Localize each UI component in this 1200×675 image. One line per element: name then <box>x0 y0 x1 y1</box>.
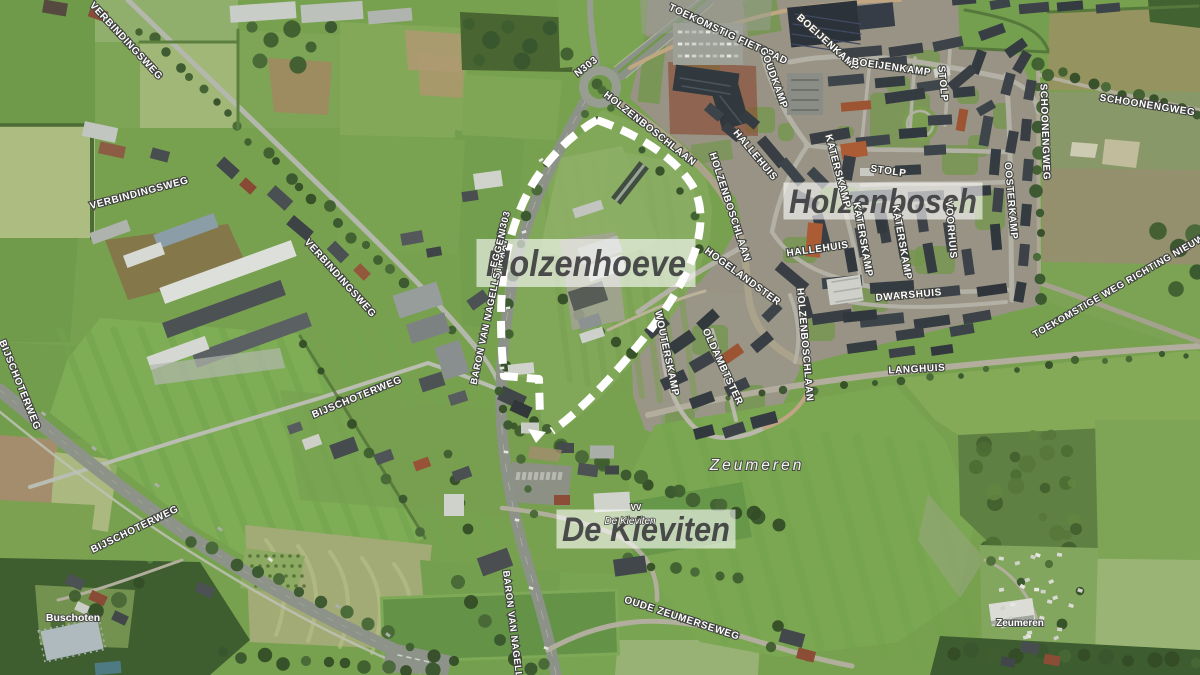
svg-text:Zeumeren: Zeumeren <box>996 618 1044 629</box>
svg-text:Holzenhoeve: Holzenhoeve <box>486 243 686 284</box>
svg-text:Zeumeren: Zeumeren <box>709 457 805 474</box>
svg-text:Buschoten: Buschoten <box>46 612 100 624</box>
svg-text:De Kieviten: De Kieviten <box>604 516 656 527</box>
svg-text:VV: VV <box>631 503 642 512</box>
